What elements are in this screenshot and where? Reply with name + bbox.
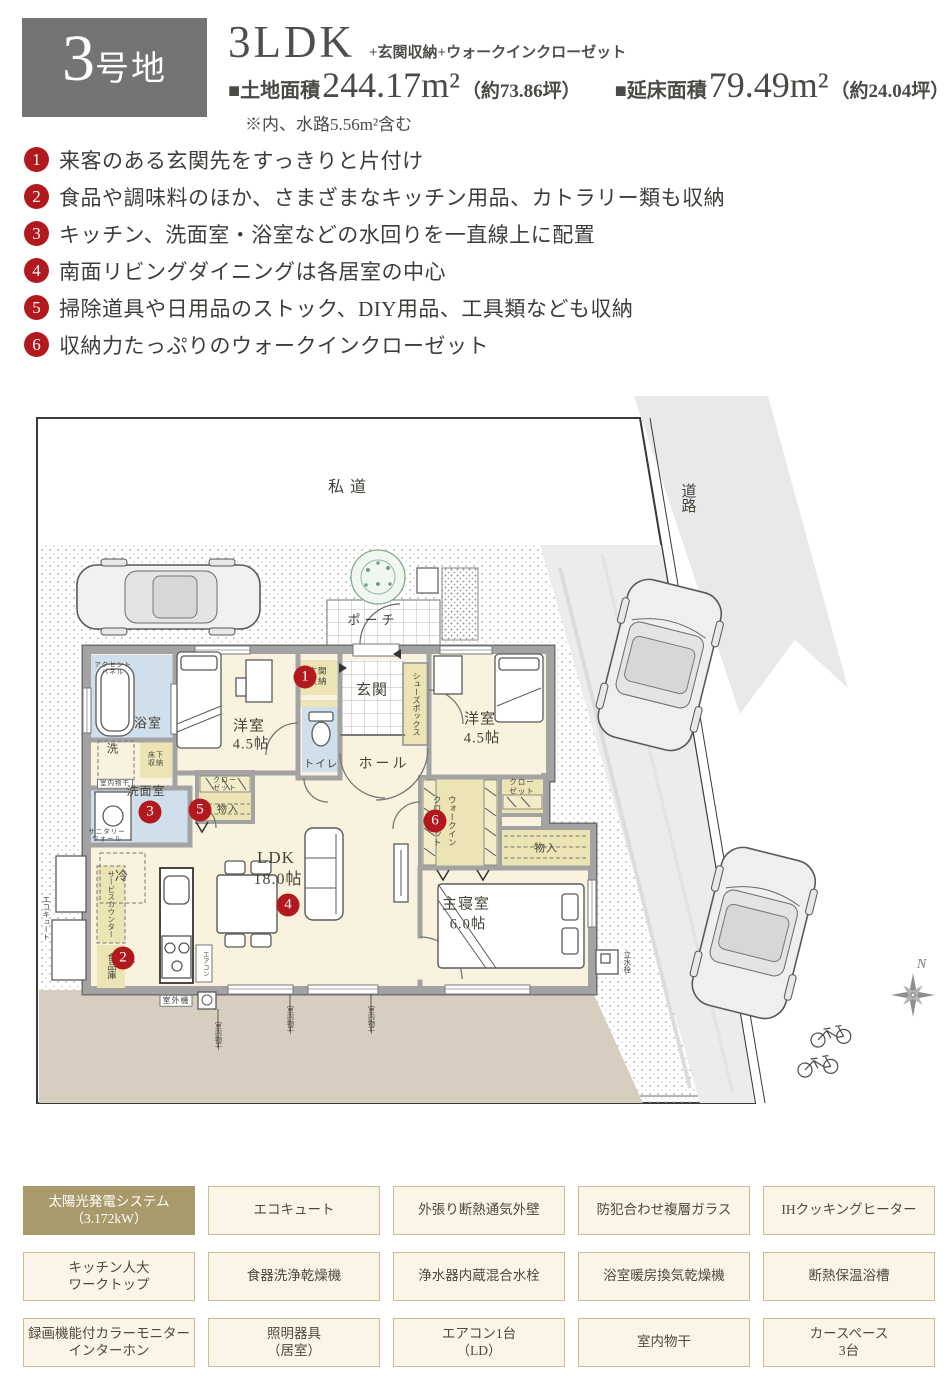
- label-ldk-name: LDK: [257, 848, 295, 868]
- equipment-badge: IHクッキングヒーター: [763, 1186, 935, 1235]
- gate-post: [417, 568, 438, 593]
- label-storage-left: 物入: [217, 804, 239, 816]
- floor-area-value: 79.49m²: [709, 64, 829, 106]
- label-service-counter: サービスカウンター: [107, 870, 115, 938]
- label-washer: 洗: [107, 743, 120, 756]
- label-underfloor-storage: 床下 収納: [148, 751, 164, 767]
- label-wic-line1: ウォークイン: [448, 796, 457, 847]
- feature-number-badge: 5: [24, 295, 49, 320]
- feature-text: 南面リビングダイニングは各居室の中心: [59, 256, 446, 286]
- label-master-size: 6.0帖: [450, 917, 487, 934]
- feature-item: 2 食品や調味料のほか、さまざまなキッチン用品、カトラリー類も収納: [24, 184, 725, 209]
- feature-text: キッチン、洗面室・浴室などの水回りを一直線上に配置: [59, 219, 595, 249]
- equipment-badge: 防犯合わせ複層ガラス: [578, 1186, 750, 1235]
- equipment-grid: 太陽光発電システム （3.172kW） エコキュート 外張り断熱通気外壁 防犯合…: [23, 1186, 935, 1367]
- area-info: ■土地面積 244.17m² （約73.86坪） ■延床面積 79.49m² （…: [228, 64, 949, 106]
- site-plan: 私道 道路 ポーチ 玄関 ホール トイレ シューズボックス 玄関 収納 浴室 洗…: [0, 388, 950, 1112]
- lot-badge: 3 号地: [22, 18, 207, 117]
- label-private-road: 私道: [328, 479, 372, 497]
- land-area-value: 244.17m²: [322, 64, 460, 106]
- label-closet-left: クロー ゼット: [213, 776, 237, 792]
- feature-text: 食品や調味料のほか、さまざまなキッチン用品、カトラリー類も収納: [59, 182, 725, 212]
- label-sanitary-wall: サニタリー ウォール: [88, 829, 126, 844]
- car-icon: [77, 559, 260, 635]
- compass-icon: [891, 973, 935, 1017]
- land-area-tsubo: （約73.86坪）: [462, 76, 581, 103]
- feature-text: 来客のある玄関先をすっきりと片付け: [59, 145, 424, 175]
- equipment-badge: 録画機能付カラーモニター インターホン: [23, 1318, 195, 1367]
- feature-item: 3 キッチン、洗面室・浴室などの水回りを一直線上に配置: [24, 221, 725, 246]
- floor-area-tsubo: （約24.04坪）: [831, 76, 950, 103]
- flyer-page: 3 号地 3LDK +玄関収納+ウォークインクローゼット ■土地面積 244.1…: [0, 0, 950, 1390]
- equipment-badge: 外張り断熱通気外壁: [393, 1186, 565, 1235]
- area-note: ※内、水路5.56m²含む: [245, 110, 412, 135]
- label-bedroom1-name: 洋室: [233, 718, 265, 735]
- plan-marker-3: 3: [139, 801, 162, 824]
- label-master-name: 主寝室: [442, 896, 490, 913]
- plan-marker-5: 5: [189, 799, 212, 822]
- equipment-badge: 照明器具 （居室）: [208, 1318, 380, 1367]
- equipment-badge: エアコン1台 （LD）: [393, 1318, 565, 1367]
- label-bedroom2-size: 4.5帖: [464, 731, 501, 748]
- feature-text: 掃除道具や日用品のストック、DIY用品、工具類なども収納: [59, 293, 633, 323]
- label-bedroom1-size: 4.5帖: [233, 737, 270, 754]
- feature-item: 5 掃除道具や日用品のストック、DIY用品、工具類なども収納: [24, 295, 725, 320]
- equipment-badge: エコキュート: [208, 1186, 380, 1235]
- label-outdoor-tap: 立水栓: [623, 951, 631, 974]
- equipment-badge: 断熱保温浴槽: [763, 1252, 935, 1301]
- plan-marker-4: 4: [277, 894, 300, 917]
- label-porch: ポーチ: [347, 614, 398, 629]
- plan-extra: +玄関収納+ウォークインクローゼット: [369, 41, 626, 62]
- feature-number-badge: 3: [24, 221, 49, 246]
- feature-item: 1 来客のある玄関先をすっきりと片付け: [24, 147, 725, 172]
- floor-plan-drawing: [0, 388, 950, 1112]
- label-ecocute: エコキュート: [42, 896, 50, 941]
- feature-number-badge: 6: [24, 332, 49, 357]
- plan-type: 3LDK: [228, 16, 355, 68]
- feature-item: 6 収納力たっぷりのウォークインクローゼット: [24, 332, 725, 357]
- label-road: 道路: [680, 483, 695, 513]
- label-fridge: 冷: [115, 870, 129, 885]
- label-outdoor-unit: 室外機: [160, 995, 193, 1007]
- bicycle-icon: [810, 1025, 852, 1048]
- plan-marker-6: 6: [424, 810, 447, 833]
- equipment-badge: 浄水器内蔵混合水栓: [393, 1252, 565, 1301]
- label-hall: ホール: [359, 757, 410, 773]
- equipment-badge: 太陽光発電システム （3.172kW）: [23, 1186, 195, 1235]
- equipment-badge: 食器洗浄乾燥機: [208, 1252, 380, 1301]
- label-storage-right: 物入: [534, 843, 558, 856]
- lot-suffix: 号地: [95, 41, 167, 90]
- feature-number-badge: 1: [24, 147, 49, 172]
- feature-text: 収納力たっぷりのウォークインクローゼット: [59, 330, 489, 360]
- label-washroom: 洗面室: [126, 785, 165, 799]
- equipment-badge: キッチン人大 ワークトップ: [23, 1252, 195, 1301]
- label-toilet: トイレ: [304, 759, 339, 771]
- plan-marker-2: 2: [112, 947, 135, 970]
- lot-number: 3: [62, 26, 95, 92]
- features-list: 1 来客のある玄関先をすっきりと片付け 2 食品や調味料のほか、さまざまなキッチ…: [24, 147, 725, 369]
- label-outdoor-hanger: 室内物干: [215, 1022, 222, 1050]
- floor-area-label: ■延床面積: [615, 74, 707, 103]
- land-area-label: ■土地面積: [228, 74, 320, 103]
- label-compass-north: N: [917, 957, 927, 973]
- equipment-badge: カースペース 3台: [763, 1318, 935, 1367]
- plan-title: 3LDK +玄関収納+ウォークインクローゼット: [228, 16, 626, 68]
- feature-number-badge: 2: [24, 184, 49, 209]
- label-entrance: 玄関: [356, 682, 388, 699]
- garden-area: [39, 990, 643, 1103]
- label-bathroom: 浴室: [134, 717, 162, 732]
- label-aircon: エアコン: [201, 951, 208, 977]
- feature-item: 4 南面リビングダイニングは各居室の中心: [24, 258, 725, 283]
- feature-number-badge: 4: [24, 258, 49, 283]
- label-ldk-size: 18.0帖: [253, 871, 302, 889]
- label-outdoor-hanger: 室内物干: [287, 1006, 294, 1034]
- equipment-badge: 浴室暖房換気乾燥機: [578, 1252, 750, 1301]
- planting-bed: [442, 568, 478, 640]
- plan-marker-1: 1: [294, 666, 317, 689]
- label-bedroom2-name: 洋室: [464, 711, 496, 728]
- label-outdoor-hanger: 室内物干: [368, 1006, 375, 1034]
- label-accent-panel: アクセント パネル: [94, 662, 131, 677]
- equipment-badge: 室内物干: [578, 1318, 750, 1367]
- label-shoes-box: シューズボックス: [412, 672, 420, 736]
- tree-icon: [351, 550, 405, 604]
- label-closet-right: クロー ゼット: [509, 778, 535, 795]
- bicycle-icon: [797, 1055, 839, 1078]
